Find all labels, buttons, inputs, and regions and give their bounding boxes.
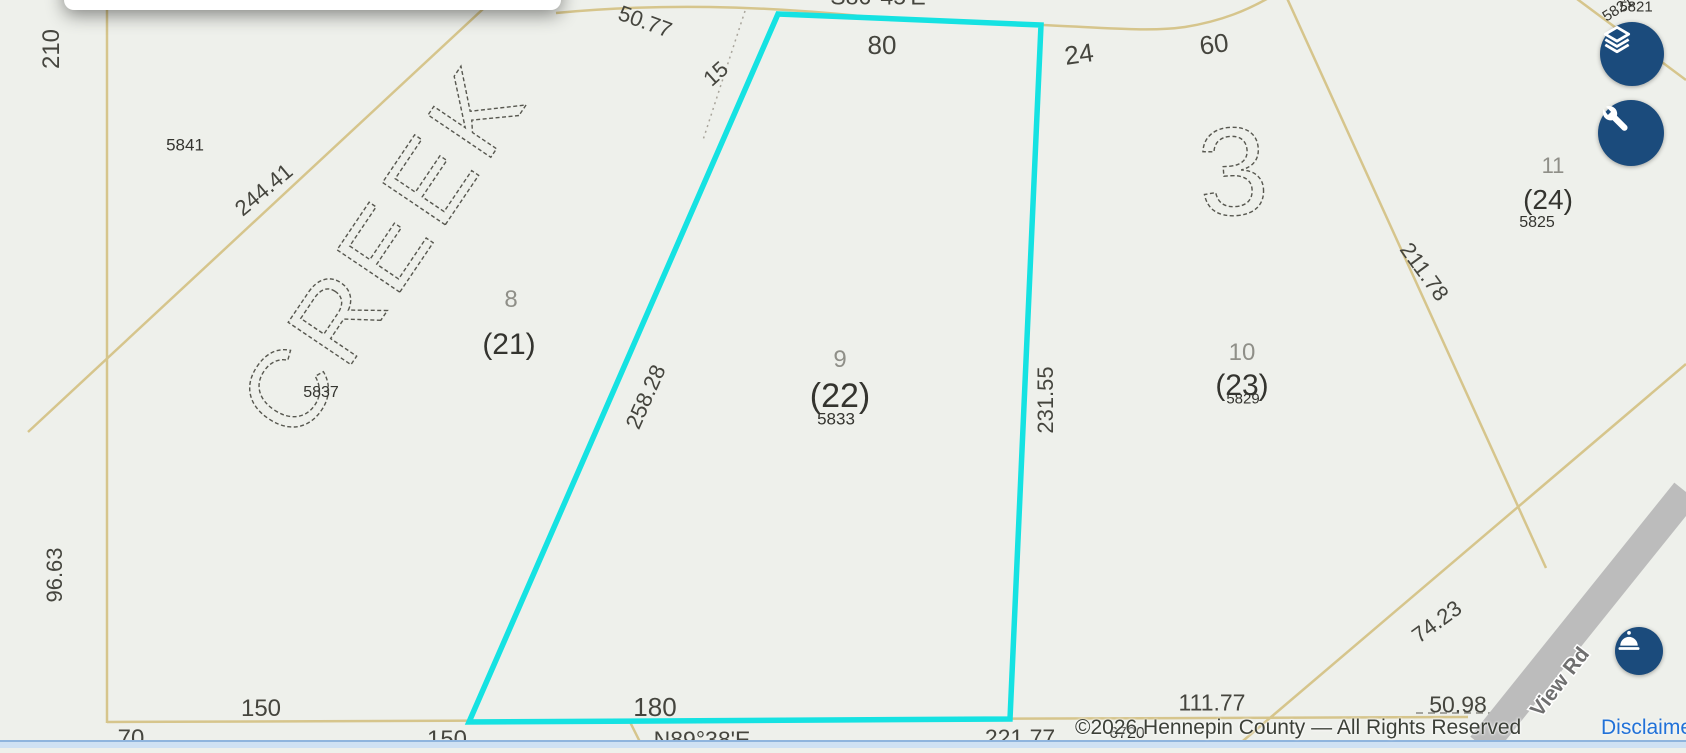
house-number-5821: 5821 [1619, 0, 1652, 15]
copyright-text: ©2026 Hennepin County — All Rights Reser… [1075, 716, 1521, 740]
lot-number-9: 9 [833, 348, 846, 372]
dim-180: 180 [633, 694, 676, 720]
dim-96-63: 96.63 [44, 547, 66, 602]
dim-50-98: 50.98 [1429, 694, 1487, 717]
selected-parcel-highlight[interactable] [469, 14, 1041, 722]
bell-icon [1615, 627, 1643, 655]
house-number-5837: 5837 [303, 385, 339, 401]
subdivision-name-text: CREEK [215, 42, 551, 458]
wrench-icon [1598, 100, 1634, 136]
bottom-road-strip [0, 740, 1686, 748]
tools-button[interactable] [1598, 100, 1664, 166]
block-number-text: 3 [1193, 100, 1272, 244]
house-number-5825: 5825 [1519, 215, 1555, 231]
house-number-5841: 5841 [166, 137, 204, 154]
parcel-id-22: (22) [810, 379, 870, 413]
layers-icon [1600, 22, 1634, 56]
parcel-id-23: (23) [1215, 371, 1268, 401]
dim-210: 210 [40, 29, 64, 69]
house-number-5833: 5833 [817, 411, 855, 428]
lot-number-8: 8 [504, 288, 517, 312]
lot-number-10: 10 [1229, 341, 1256, 365]
parcel-map-canvas[interactable]: CREEK 3 View Rd S86°45'E 50.77 15 80 24 … [0, 0, 1686, 746]
bearing-label-top: S86°45'E [830, 0, 925, 9]
bell-button[interactable] [1615, 627, 1663, 675]
dim-24: 24 [1063, 39, 1095, 69]
road-band [1482, 492, 1686, 746]
dim-231-55: 231.55 [1035, 366, 1057, 433]
dim-60: 60 [1198, 29, 1230, 59]
parcel-id-24: (24) [1523, 186, 1573, 214]
disclaimer-link[interactable]: Disclaimer [1601, 716, 1686, 740]
dim-80: 80 [868, 32, 897, 58]
search-bar[interactable] [64, 0, 561, 10]
lot-number-11: 11 [1542, 155, 1565, 177]
dim-150-left: 150 [241, 697, 281, 721]
layers-button[interactable] [1600, 22, 1664, 86]
parcel-id-21: (21) [482, 330, 535, 360]
dim-111-77: 111.77 [1179, 692, 1246, 715]
